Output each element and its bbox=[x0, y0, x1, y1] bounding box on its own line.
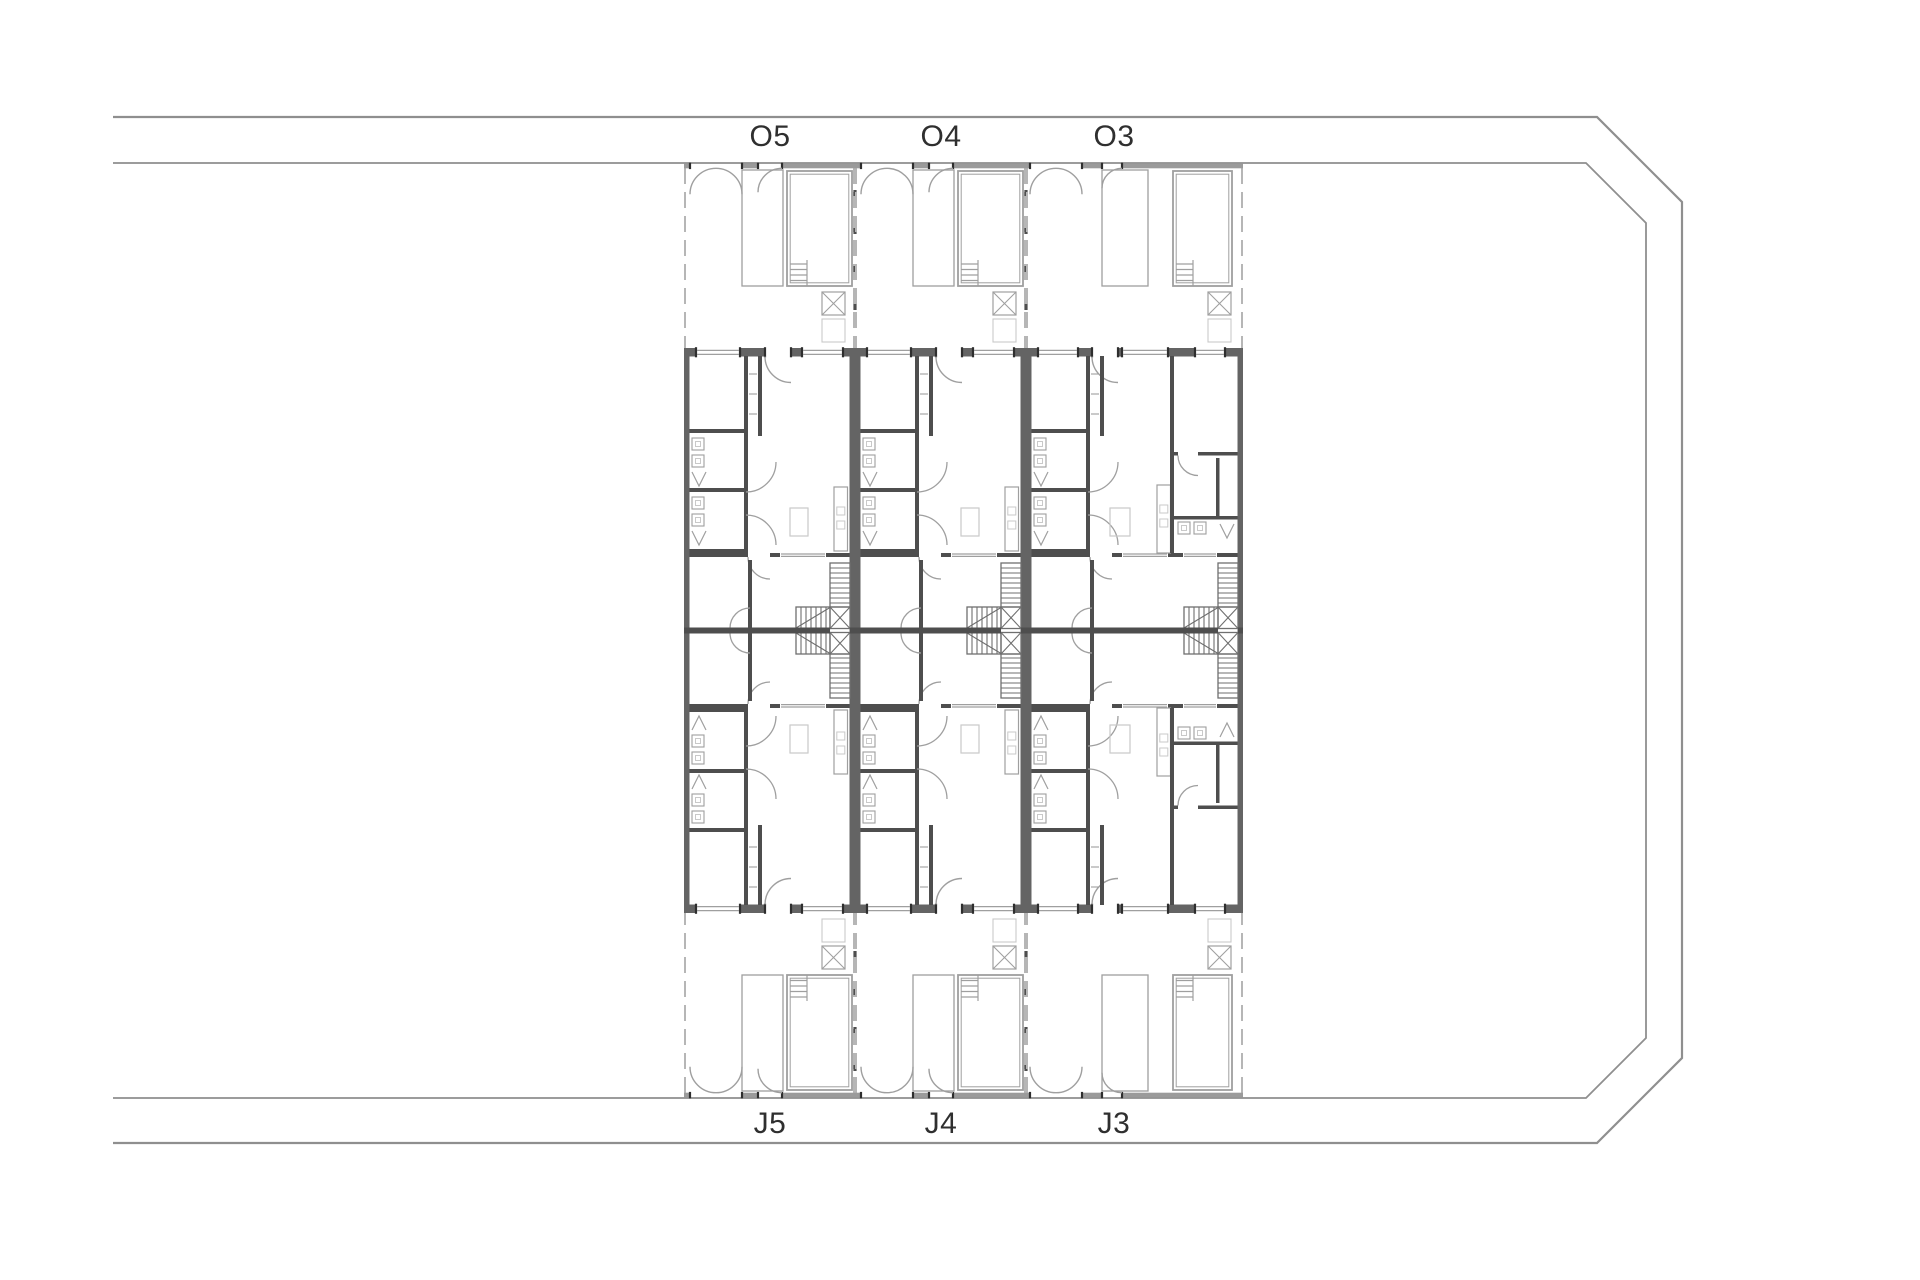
unit-label-O3: O3 bbox=[1093, 120, 1134, 153]
unit-J3 bbox=[1026, 631, 1243, 1099]
unit-O5 bbox=[684, 163, 857, 631]
unit-label-J5: J5 bbox=[754, 1107, 787, 1140]
unit-O4 bbox=[855, 163, 1028, 631]
stair-O5 bbox=[796, 563, 850, 629]
unit-label-O5: O5 bbox=[749, 120, 790, 153]
site-plan-svg: O5J5O4J4O3J3 bbox=[0, 0, 1920, 1280]
townhouse-units bbox=[684, 163, 1243, 1099]
unit-label-J4: J4 bbox=[925, 1107, 958, 1140]
unit-label-O4: O4 bbox=[920, 120, 961, 153]
floor-plan-page: O5J5O4J4O3J3 bbox=[0, 0, 1920, 1280]
stair-O3 bbox=[1184, 563, 1238, 629]
unit-J4 bbox=[855, 631, 1028, 1099]
unit-O3 bbox=[1026, 163, 1243, 631]
unit-label-J3: J3 bbox=[1098, 1107, 1131, 1140]
stair-O4 bbox=[967, 563, 1021, 629]
unit-J5 bbox=[684, 631, 857, 1099]
